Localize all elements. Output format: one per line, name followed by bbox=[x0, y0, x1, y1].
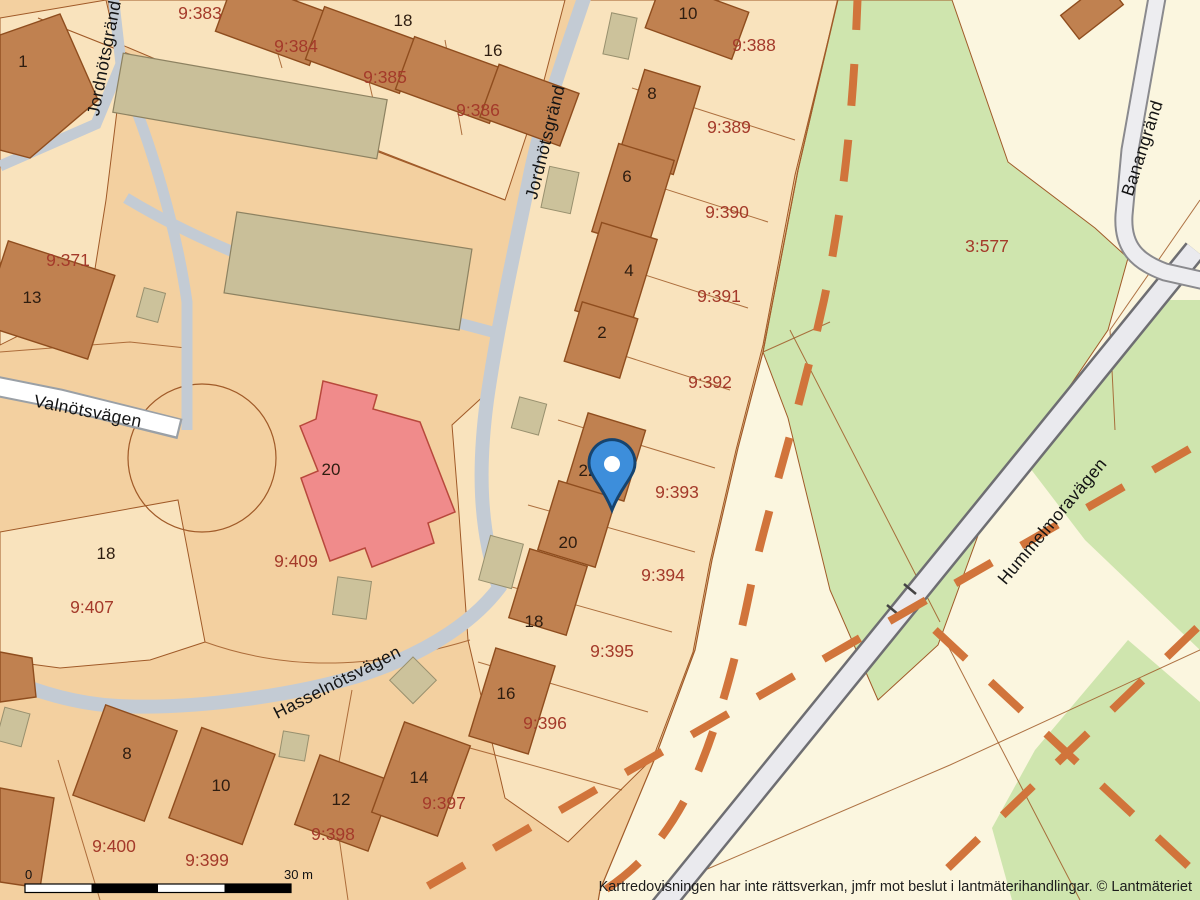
parcel-label-9399: 9:399 bbox=[185, 850, 229, 870]
parcel-label-9385: 9:385 bbox=[363, 67, 407, 87]
house-number: 2 bbox=[597, 323, 606, 342]
parcel-label-9396: 9:396 bbox=[523, 713, 567, 733]
parcel-label-9371: 9:371 bbox=[46, 250, 90, 270]
parcel-label-9384: 9:384 bbox=[274, 36, 318, 56]
house-number: 14 bbox=[410, 768, 429, 787]
house-number: 8 bbox=[122, 744, 131, 763]
house-number: 16 bbox=[484, 41, 503, 60]
house-number: 18 bbox=[525, 612, 544, 631]
map-canvas[interactable]: 9:383 9:384 9:385 9:386 9:371 9:388 9:38… bbox=[0, 0, 1200, 900]
parcel-label-9398: 9:398 bbox=[311, 824, 355, 844]
house-number: 10 bbox=[679, 4, 698, 23]
house-number: 12 bbox=[332, 790, 351, 809]
house-number: 8 bbox=[647, 84, 656, 103]
parcel-label-3577: 3:577 bbox=[965, 236, 1009, 256]
parcel-label-9395: 9:395 bbox=[590, 641, 634, 661]
attribution-text: Kartredovisningen har inte rättsverkan, … bbox=[599, 879, 1192, 895]
parcel-label-9397: 9:397 bbox=[422, 793, 466, 813]
house-number: 20 bbox=[322, 460, 341, 479]
parcel-label-9400: 9:400 bbox=[92, 836, 136, 856]
house-number: 20 bbox=[559, 533, 578, 552]
scale-bar-start-label: 0 bbox=[25, 867, 32, 882]
parcel-label-9386: 9:386 bbox=[456, 100, 500, 120]
parcel-label-9389: 9:389 bbox=[707, 117, 751, 137]
parcel-label-9388: 9:388 bbox=[732, 35, 776, 55]
house-number: 10 bbox=[212, 776, 231, 795]
house-number: 13 bbox=[23, 288, 42, 307]
parcel-label-9391: 9:391 bbox=[697, 286, 741, 306]
scale-bar-end-label: 30 m bbox=[284, 867, 313, 882]
house-number: 6 bbox=[622, 167, 631, 186]
parcel-label-9393: 9:393 bbox=[655, 482, 699, 502]
parcel-label-9392: 9:392 bbox=[688, 372, 732, 392]
parcel-label-9394: 9:394 bbox=[641, 565, 685, 585]
map-viewport: 9:383 9:384 9:385 9:386 9:371 9:388 9:38… bbox=[0, 0, 1200, 900]
house-number: 16 bbox=[497, 684, 516, 703]
parcel-label-9390: 9:390 bbox=[705, 202, 749, 222]
house-number: 1 bbox=[18, 52, 27, 71]
house-number: 18 bbox=[394, 11, 413, 30]
location-pin-center-dot bbox=[604, 456, 620, 472]
house-number: 18 bbox=[97, 544, 116, 563]
parcel-label-9407: 9:407 bbox=[70, 597, 114, 617]
house-number: 4 bbox=[624, 261, 633, 280]
parcel-label-9383: 9:383 bbox=[178, 3, 222, 23]
parcel-label-9409: 9:409 bbox=[274, 551, 318, 571]
